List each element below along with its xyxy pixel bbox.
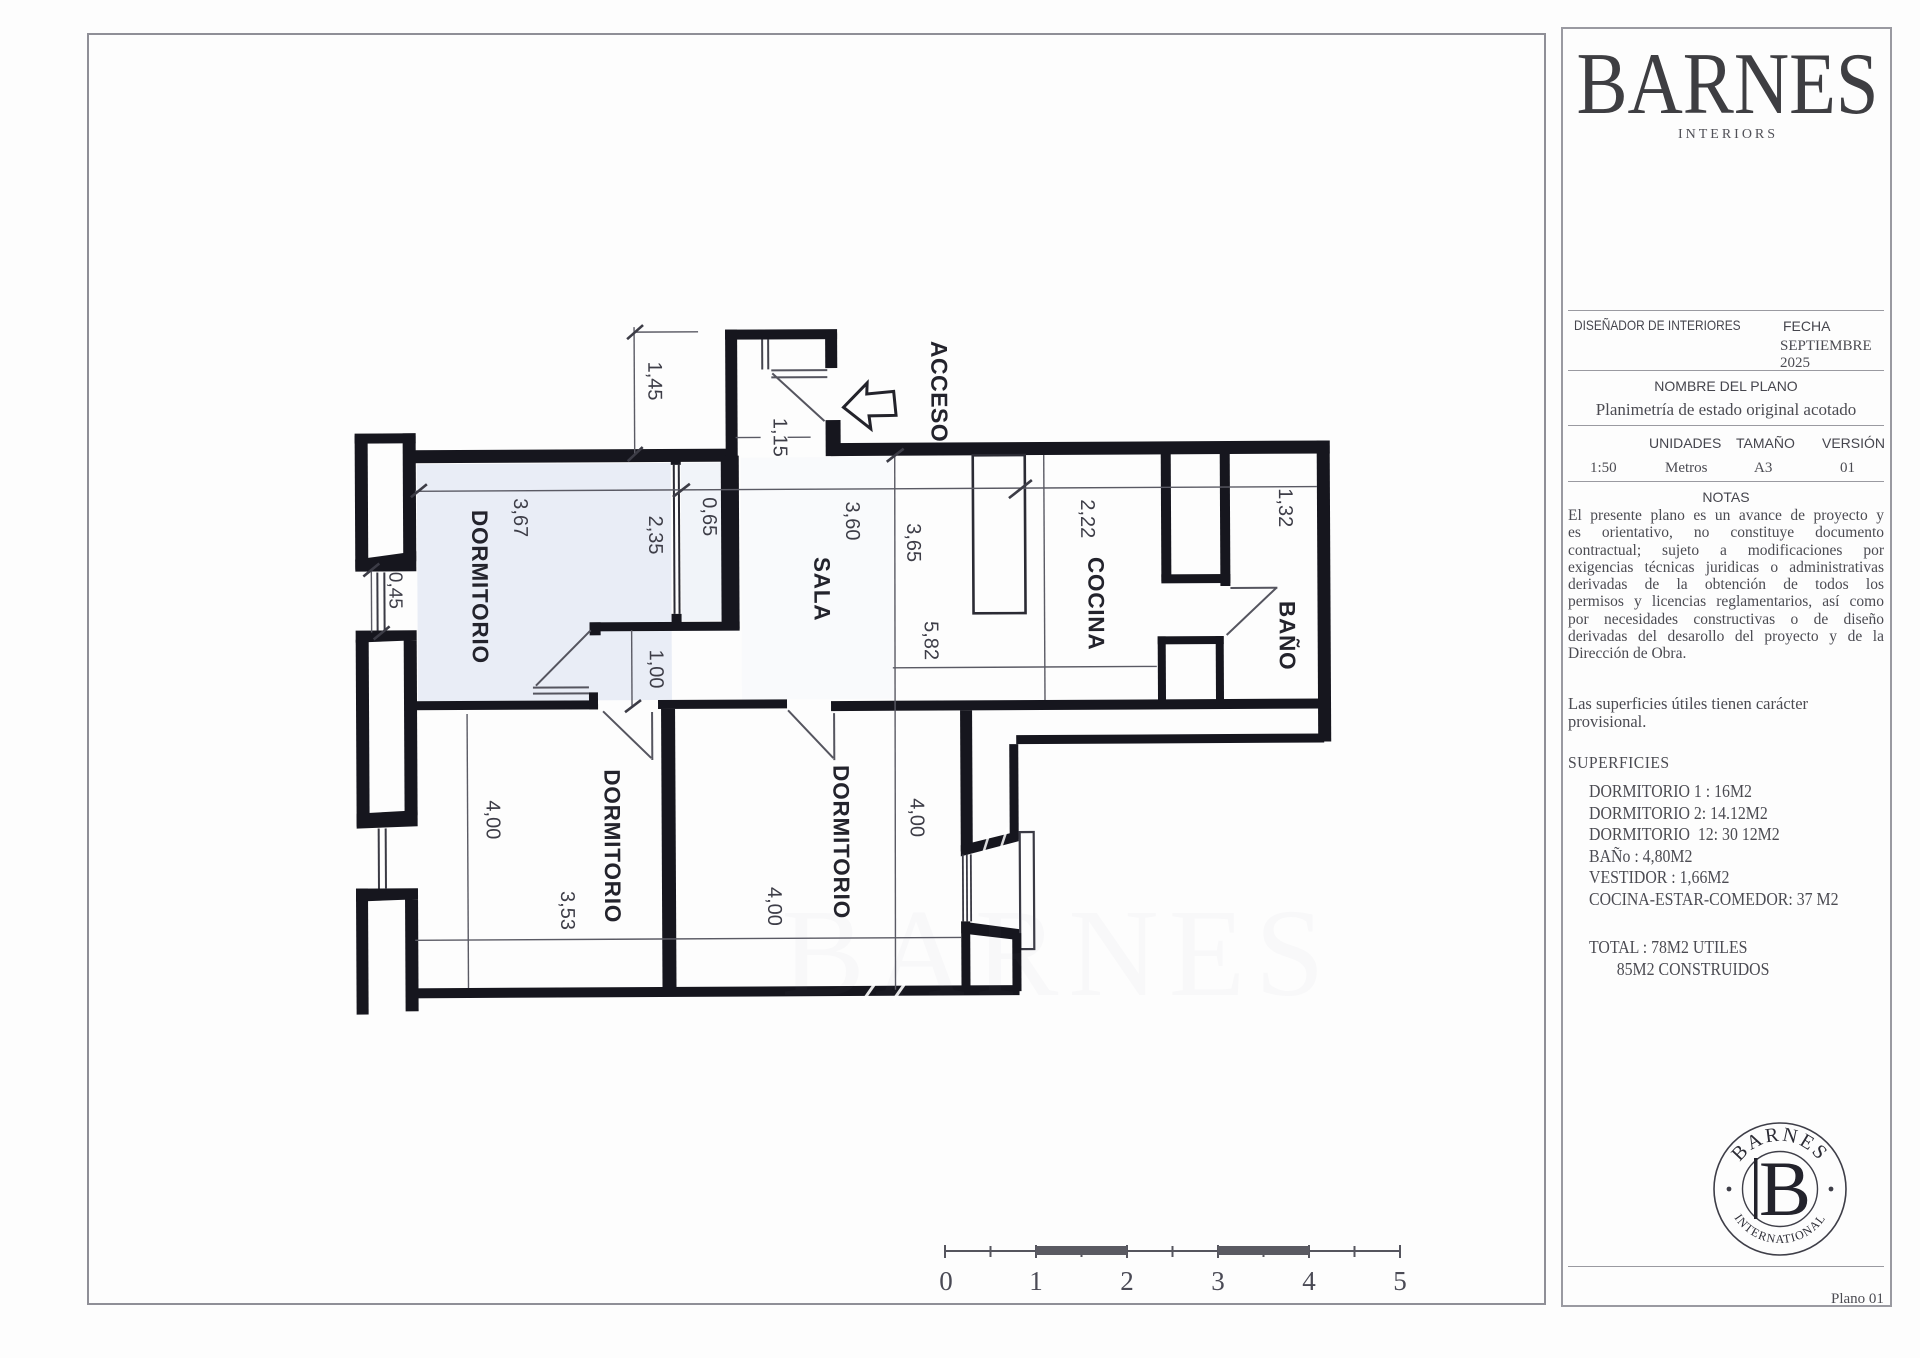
svg-text:0,45: 0,45 bbox=[384, 572, 405, 609]
svg-text:4,00: 4,00 bbox=[906, 798, 928, 837]
svg-text:1: 1 bbox=[1029, 1266, 1043, 1296]
svg-text:ACCESO: ACCESO bbox=[926, 341, 953, 443]
svg-text:3,65: 3,65 bbox=[902, 523, 924, 562]
svg-text:0,65: 0,65 bbox=[698, 497, 720, 536]
svg-text:1,00: 1,00 bbox=[645, 649, 667, 688]
svg-text:5,82: 5,82 bbox=[920, 621, 942, 660]
svg-text:3: 3 bbox=[1211, 1266, 1225, 1296]
svg-text:1,32: 1,32 bbox=[1274, 488, 1296, 527]
svg-text:0: 0 bbox=[939, 1266, 953, 1296]
svg-text:BARNES: BARNES bbox=[781, 885, 1334, 1023]
svg-text:B: B bbox=[1759, 1145, 1811, 1232]
svg-text:4,00: 4,00 bbox=[482, 800, 504, 839]
svg-text:5: 5 bbox=[1393, 1266, 1407, 1296]
svg-text:DORMITORIO: DORMITORIO bbox=[599, 769, 625, 923]
svg-text:2,35: 2,35 bbox=[644, 515, 666, 554]
svg-text:COCINA: COCINA bbox=[1083, 557, 1108, 651]
svg-text:1,45: 1,45 bbox=[643, 361, 665, 400]
svg-text:DORMITORIO: DORMITORIO bbox=[467, 510, 493, 664]
svg-text:3,67: 3,67 bbox=[509, 498, 531, 537]
svg-text:3,60: 3,60 bbox=[841, 501, 863, 540]
svg-text:SALA: SALA bbox=[809, 557, 834, 622]
svg-text:BAÑO: BAÑO bbox=[1274, 601, 1299, 671]
svg-text:2,22: 2,22 bbox=[1076, 499, 1098, 538]
svg-text:1,15: 1,15 bbox=[769, 418, 791, 457]
svg-text:4: 4 bbox=[1302, 1266, 1316, 1296]
svg-text:3,53: 3,53 bbox=[556, 891, 578, 930]
svg-text:2: 2 bbox=[1120, 1266, 1134, 1296]
